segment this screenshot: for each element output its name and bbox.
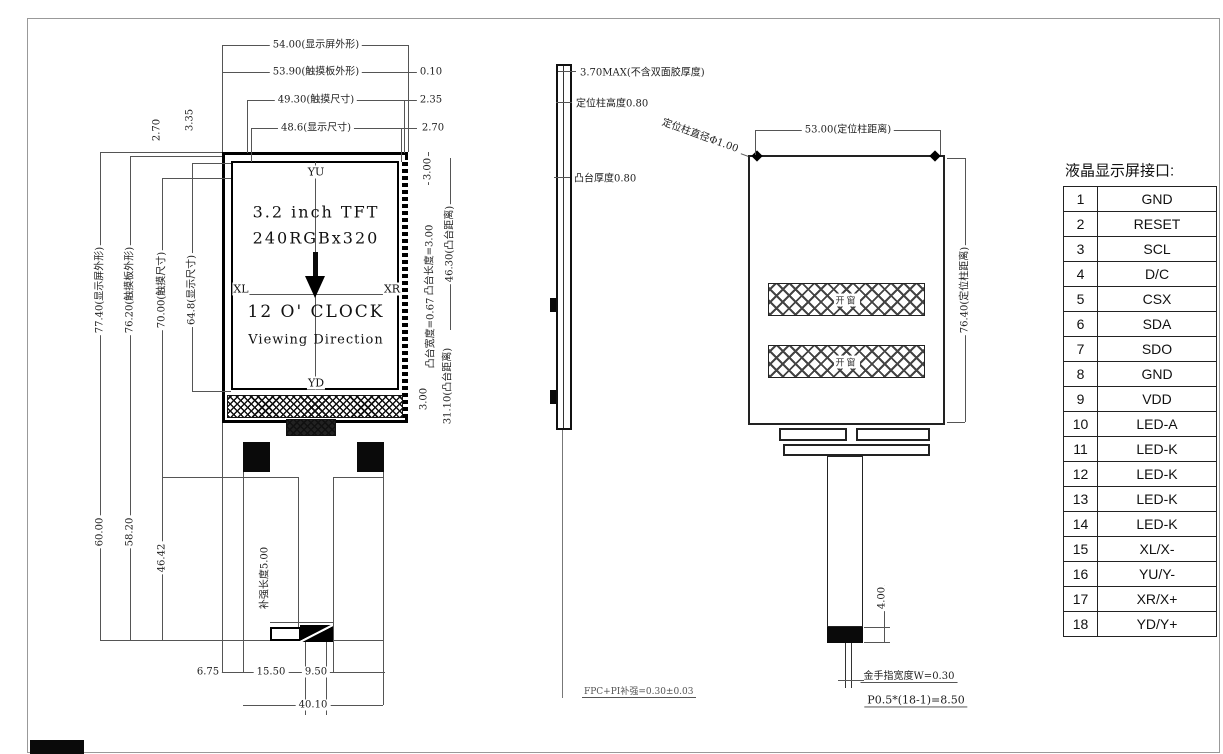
gold-finger-note: 金手指宽度W=0.30 — [861, 671, 958, 683]
pin-row: 2RESET — [1064, 212, 1217, 237]
dim-label: 凸台长度=3.00 — [425, 223, 436, 298]
pin-row: 13LED-K — [1064, 487, 1217, 512]
extension-line — [755, 130, 756, 155]
dim-label: 54.00(显示屏外形) — [270, 40, 362, 51]
side-boss-1 — [550, 298, 556, 312]
leader-line — [554, 177, 570, 178]
pin-name: D/C — [1098, 262, 1217, 287]
back-tail — [827, 456, 863, 627]
dim-label: 40.10 — [296, 700, 331, 711]
dim-label: 2.70 — [152, 117, 163, 143]
drawing-line — [298, 477, 299, 640]
front-right-edge-boss-strip — [402, 160, 408, 418]
back-bar-left — [779, 428, 847, 441]
dim-label: 46.42 — [157, 542, 168, 575]
back-bar-right — [856, 428, 930, 441]
direction-arrow-icon — [305, 276, 325, 298]
extension-line — [192, 163, 231, 164]
pin-row: 17XR/X+ — [1064, 587, 1217, 612]
pin-name: YD/Y+ — [1098, 612, 1217, 637]
drawing-line — [333, 477, 383, 478]
pin-row: 5CSX — [1064, 287, 1217, 312]
pin-name: LED-K — [1098, 487, 1217, 512]
pin-number: 9 — [1064, 387, 1098, 412]
extension-line — [251, 128, 252, 162]
front-ffc-hatch-strip — [227, 395, 403, 418]
leader-line — [556, 102, 572, 103]
pin-name: SDO — [1098, 337, 1217, 362]
stiffener-label: 补强长度5.00 — [260, 545, 271, 611]
tail-connector-back — [827, 627, 863, 643]
extension-line — [222, 45, 223, 152]
marker-yd: YD — [307, 377, 325, 390]
back-window-2: 开窗 — [768, 345, 925, 378]
pin-row: 3SCL — [1064, 237, 1217, 262]
extension-line — [947, 422, 965, 423]
marker-xl: XL — [232, 283, 249, 296]
side-label-thickness: 3.70MAX(不含双面胶厚度) — [578, 64, 707, 79]
pin-row: 9VDD — [1064, 387, 1217, 412]
window-label: 开窗 — [833, 293, 859, 306]
dim-line — [195, 672, 385, 673]
dim-label: 76.20(触摸板外形) — [125, 245, 136, 335]
pin-row: 15XL/X- — [1064, 537, 1217, 562]
pin-name: CSX — [1098, 287, 1217, 312]
dim-label: 46.30(凸台距离) — [445, 204, 456, 284]
dim-label: 60.00 — [95, 516, 106, 549]
dim-label: 4.00 — [877, 585, 888, 611]
extension-line — [100, 152, 222, 153]
pin-name: GND — [1098, 362, 1217, 387]
extension-line — [864, 642, 890, 643]
side-label-boss-thickness: 凸台厚度0.80 — [572, 170, 638, 185]
pin-number: 12 — [1064, 462, 1098, 487]
back-window-1: 开窗 — [768, 283, 925, 316]
dim-label: 15.50 — [254, 667, 289, 678]
pin-name: LED-K — [1098, 512, 1217, 537]
pin-number: 5 — [1064, 287, 1098, 312]
dim-label: 2.35 — [417, 95, 445, 106]
display-resolution-text: 240RGBx320 — [253, 229, 380, 248]
dim-label: 70.00(触摸尺寸) — [157, 250, 168, 330]
gold-finger-line — [851, 643, 852, 688]
back-bar-wide — [783, 444, 930, 456]
extension-line — [247, 100, 248, 153]
pin-name: SDA — [1098, 312, 1217, 337]
fpc-pad-right — [357, 442, 384, 472]
sheet-border — [27, 18, 1220, 753]
extension-line — [947, 158, 965, 159]
pin-number: 2 — [1064, 212, 1098, 237]
extension-line — [404, 100, 405, 153]
pin-name: GND — [1098, 187, 1217, 212]
pin-number: 17 — [1064, 587, 1098, 612]
dim-line — [404, 100, 417, 101]
dim-label: 31.10(凸台距离) — [443, 346, 454, 426]
pin-name: LED-K — [1098, 437, 1217, 462]
pin-name: SCL — [1098, 237, 1217, 262]
pin-table-body: 1GND2RESET3SCL4D/C5CSX6SDA7SDO8GND9VDD10… — [1064, 187, 1217, 637]
extension-line — [408, 45, 409, 152]
pin-number: 8 — [1064, 362, 1098, 387]
extension-line — [192, 391, 231, 392]
fpc-pad-left — [243, 442, 270, 472]
pin-number: 13 — [1064, 487, 1098, 512]
pin-row: 14LED-K — [1064, 512, 1217, 537]
pin-name: VDD — [1098, 387, 1217, 412]
dim-label: 77.40(显示屏外形) — [95, 245, 106, 335]
pin-table-title: 液晶显示屏接口: — [1063, 160, 1176, 181]
extension-line — [864, 627, 890, 628]
marker-xr: XR — [383, 283, 401, 296]
dim-label: 76.40(定位柱距离) — [960, 245, 971, 335]
dim-label: 64.8(显示尺寸) — [187, 253, 198, 327]
pin-name: LED-K — [1098, 462, 1217, 487]
pin-number: 4 — [1064, 262, 1098, 287]
extension-line — [401, 128, 402, 162]
pin-name: XL/X- — [1098, 537, 1217, 562]
leader-line — [558, 71, 576, 72]
drawing-line — [222, 423, 223, 672]
extension-line — [940, 130, 941, 155]
dim-label: 6.75 — [194, 667, 222, 678]
drawing-line — [243, 477, 298, 478]
dim-label: 48.6(显示尺寸) — [278, 123, 354, 134]
dim-label: 0.10 — [417, 67, 445, 78]
direction-arrow-shaft — [313, 252, 318, 278]
pin-row: 10LED-A — [1064, 412, 1217, 437]
pin-number: 11 — [1064, 437, 1098, 462]
side-profile-innerline — [563, 66, 564, 428]
pin-number: 14 — [1064, 512, 1098, 537]
drawing-line — [243, 472, 244, 672]
drawing-line — [383, 472, 384, 705]
pin-name: LED-A — [1098, 412, 1217, 437]
dim-label: 58.20 — [125, 516, 136, 549]
side-boss-2 — [550, 390, 556, 404]
dim-label: 3.00 — [423, 156, 434, 182]
pin-number: 7 — [1064, 337, 1098, 362]
dim-line — [100, 152, 101, 640]
extension-line — [130, 156, 222, 157]
dim-label: 49.30(触摸尺寸) — [275, 95, 357, 106]
dim-label: 53.00(定位柱距离) — [802, 125, 894, 136]
drawing-line — [333, 477, 334, 672]
gold-finger-line — [845, 643, 846, 688]
dim-label: 9.50 — [302, 667, 330, 678]
dim-label: 3.35 — [185, 107, 196, 133]
dim-label: 3.00 — [419, 386, 430, 412]
pin-row: 8GND — [1064, 362, 1217, 387]
side-label-post-height: 定位柱高度0.80 — [574, 95, 650, 110]
drawing-line — [270, 622, 333, 623]
sheet-corner-mark — [30, 740, 84, 754]
pin-row: 4D/C — [1064, 262, 1217, 287]
viewing-direction-text: Viewing Direction — [248, 333, 383, 348]
extension-line — [162, 477, 243, 478]
pin-row: 12LED-K — [1064, 462, 1217, 487]
pin-name: XR/X+ — [1098, 587, 1217, 612]
stiffener-box — [270, 627, 301, 641]
pin-row: 7SDO — [1064, 337, 1217, 362]
pitch-note: P0.5*(18-1)=8.50 — [864, 694, 967, 707]
clock-text: 12 O' CLOCK — [248, 302, 385, 322]
drawing-line — [100, 640, 383, 641]
dim-label: 53.90(触摸板外形) — [270, 67, 362, 78]
side-profile — [556, 64, 572, 430]
pin-number: 6 — [1064, 312, 1098, 337]
pin-name: RESET — [1098, 212, 1217, 237]
marker-yu: YU — [307, 166, 326, 179]
pin-number: 10 — [1064, 412, 1098, 437]
pin-number: 16 — [1064, 562, 1098, 587]
pin-row: 1GND — [1064, 187, 1217, 212]
pin-number: 1 — [1064, 187, 1098, 212]
pin-row: 18YD/Y+ — [1064, 612, 1217, 637]
pin-name: YU/Y- — [1098, 562, 1217, 587]
pin-number: 18 — [1064, 612, 1098, 637]
display-size-text: 3.2 inch TFT — [253, 203, 380, 222]
fpc-fold — [286, 419, 336, 436]
pin-table: 1GND2RESET3SCL4D/C5CSX6SDA7SDO8GND9VDD10… — [1063, 186, 1217, 637]
dim-label: 凸台宽度=0.67 — [426, 296, 437, 371]
side-fpc-note: FPC+PI补强=0.30±0.03 — [582, 684, 696, 698]
pin-number: 3 — [1064, 237, 1098, 262]
dim-label: 2.70 — [419, 123, 447, 134]
dim-line — [401, 128, 417, 129]
extension-line — [162, 178, 231, 179]
pin-row: 6SDA — [1064, 312, 1217, 337]
pin-row: 11LED-K — [1064, 437, 1217, 462]
pin-row: 16YU/Y- — [1064, 562, 1217, 587]
pin-number: 15 — [1064, 537, 1098, 562]
side-fpc-line — [562, 430, 563, 698]
tail-connector-front — [300, 625, 333, 642]
dim-line — [130, 156, 131, 640]
lcd-module-drawing: 3.2 inch TFT 240RGBx320 12 O' CLOCK View… — [0, 0, 1223, 754]
window-label: 开窗 — [833, 355, 859, 368]
